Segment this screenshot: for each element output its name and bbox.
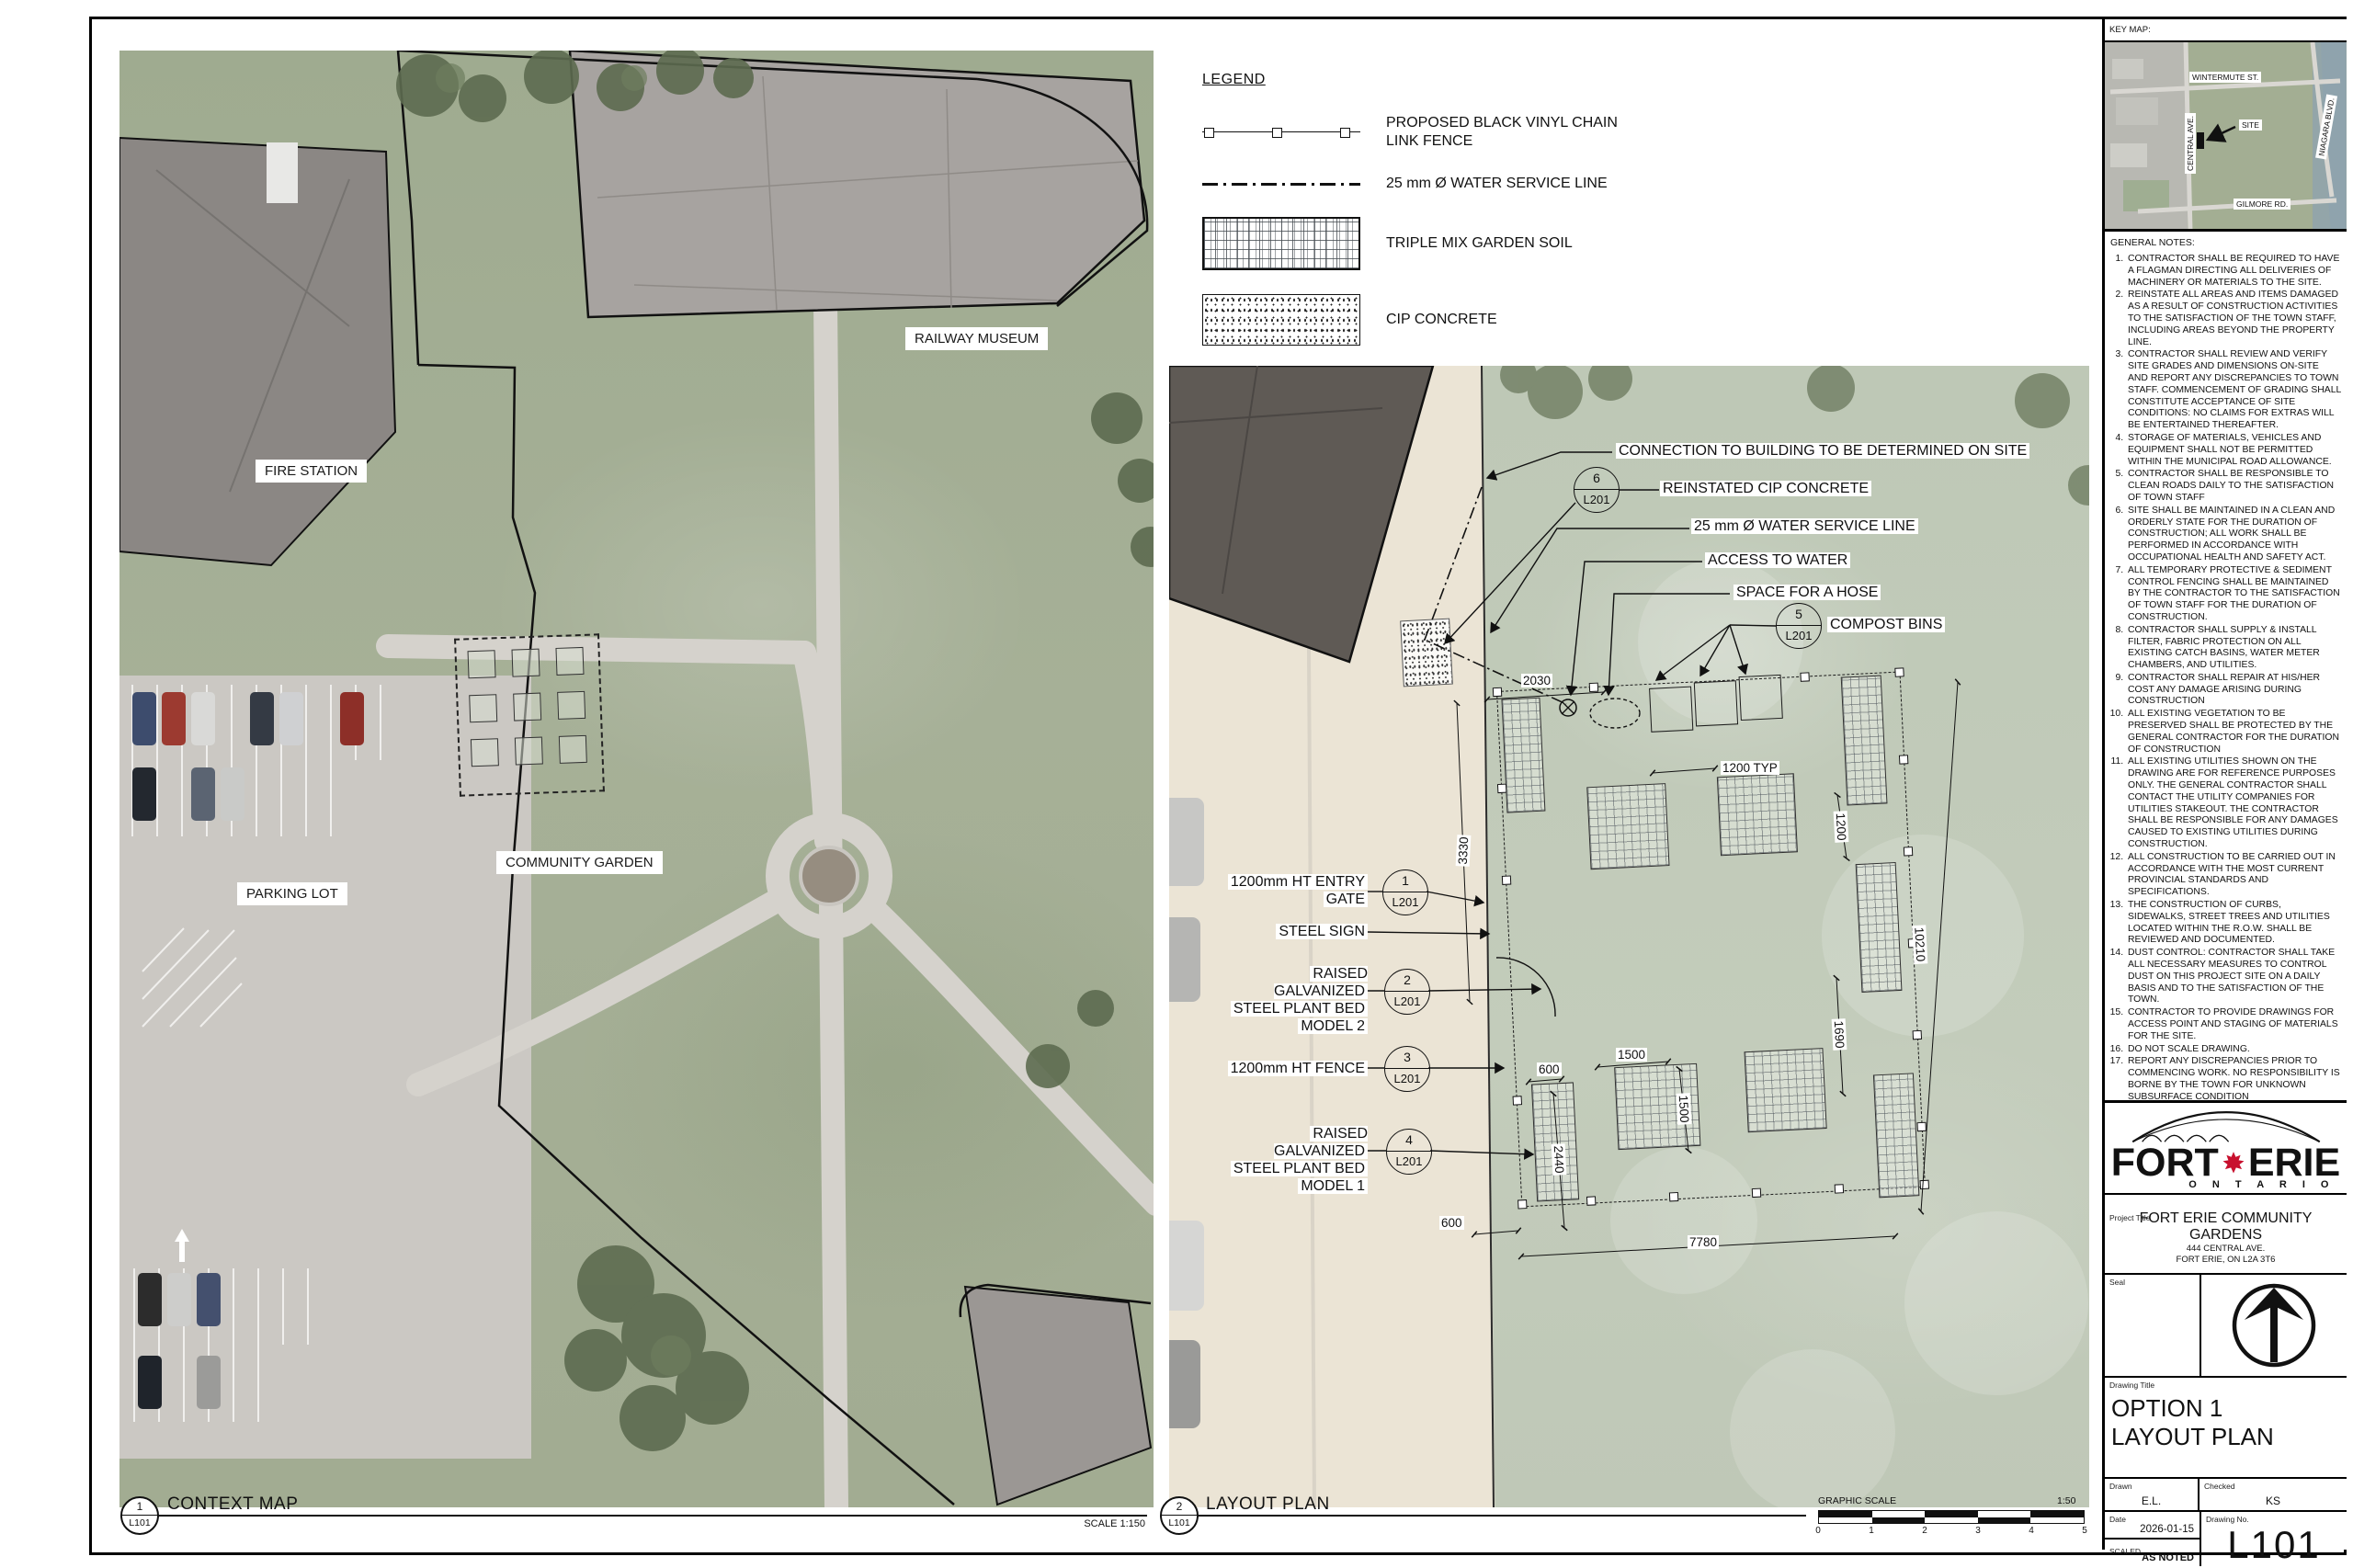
parked-car bbox=[1169, 1340, 1200, 1428]
note-item: CONTRACTOR SHALL BE REQUIRED TO HAVE A F… bbox=[2126, 254, 2341, 289]
callout-steel-sign: STEEL SIGN bbox=[1221, 923, 1368, 940]
key-map: WINTERMUTE ST. SITE CENTRAL AVE. NIAGARA… bbox=[2105, 42, 2347, 232]
note-item: CONTRACTOR TO PROVIDE DRAWINGS FOR ACCES… bbox=[2126, 1007, 2341, 1042]
drawing-title-section: Drawing Title OPTION 1 LAYOUT PLAN bbox=[2105, 1378, 2347, 1479]
water-service-line-symbol bbox=[1202, 183, 1360, 186]
parked-car bbox=[1169, 798, 1204, 886]
street-label-central: CENTRAL AVE. bbox=[2185, 113, 2196, 174]
north-arrow-cell bbox=[2201, 1275, 2347, 1376]
seal-row: Seal bbox=[2105, 1275, 2347, 1378]
dim-1690: 1690 bbox=[1832, 1018, 1847, 1051]
site-label: SITE bbox=[2239, 119, 2262, 131]
plant-bed bbox=[1531, 1082, 1579, 1201]
drawn-value: E.L. bbox=[2105, 1494, 2198, 1507]
graphic-scale-label: GRAPHIC SCALE bbox=[1818, 1495, 1896, 1506]
note-item: CONTRACTOR SHALL SUPPLY & INSTALL FILTER… bbox=[2126, 625, 2341, 672]
drawing-title-label: Drawing Title bbox=[2109, 1381, 2154, 1390]
detail-bubble-2: 2L201 bbox=[1384, 969, 1430, 1015]
compost-bin bbox=[1694, 680, 1738, 726]
scale-tick: 0 bbox=[1813, 1526, 1824, 1536]
building-roof bbox=[1169, 366, 1433, 662]
key-map-graphics bbox=[2105, 42, 2347, 232]
railway-museum-label: RAILWAY MUSEUM bbox=[905, 327, 1048, 350]
detail-bubble-4: 4L201 bbox=[1386, 1129, 1432, 1175]
drawing-number-value: L101 bbox=[2201, 1523, 2347, 1567]
context-map-aerial bbox=[119, 51, 1154, 1507]
scale-tick: 2 bbox=[1919, 1526, 1930, 1536]
view2-title: LAYOUT PLAN bbox=[1206, 1494, 1330, 1515]
plant-bed bbox=[1717, 773, 1798, 856]
reinstated-concrete-patch bbox=[1400, 619, 1453, 687]
dim-3330: 3330 bbox=[1456, 835, 1472, 867]
plant-bed bbox=[1873, 1073, 1919, 1198]
date-scale-number-row: Date 2026-01-15 SCALED AS NOTED Drawing … bbox=[2105, 1512, 2347, 1566]
sidewalk-edge-line bbox=[1482, 366, 1494, 1507]
north-arrow-icon bbox=[2230, 1281, 2318, 1369]
seal-label: Seal bbox=[2109, 1278, 2125, 1287]
callout-compost-bins: COMPOST BINS bbox=[1827, 617, 1945, 633]
dim-1200-typ: 1200 TYP bbox=[1721, 761, 1779, 775]
note-item: CONTRACTOR SHALL REVIEW AND VERIFY SITE … bbox=[2126, 349, 2341, 432]
chain-link-fence-symbol bbox=[1202, 126, 1360, 139]
dim-600-mid: 600 bbox=[1537, 1062, 1562, 1076]
title-block: KEY MAP: WINTERMUTE ST. SITE CENTRAL AVE… bbox=[2102, 19, 2347, 1550]
checked-cell: Checked KS bbox=[2200, 1479, 2347, 1510]
note-item: STORAGE OF MATERIALS, VEHICLES AND EQUIP… bbox=[2126, 433, 2341, 468]
dim-600-bottom: 600 bbox=[1439, 1216, 1464, 1230]
roundabout-island bbox=[801, 847, 858, 904]
view2-bubble: 2L101 bbox=[1160, 1496, 1199, 1535]
street-label-wintermute: WINTERMUTE ST. bbox=[2189, 72, 2261, 83]
garden-fence-enclosure bbox=[1496, 672, 1926, 1208]
garden-soil-hatch-symbol bbox=[1202, 217, 1360, 270]
maple-leaf-icon bbox=[2222, 1151, 2245, 1175]
logo-word-fort: FORT bbox=[2111, 1142, 2219, 1183]
callout-entry-gate: 1200mm HT ENTRYGATE bbox=[1221, 873, 1368, 908]
drawn-cell: Drawn E.L. bbox=[2105, 1479, 2200, 1510]
project-address2: FORT ERIE, ON L2A 3T6 bbox=[2105, 1255, 2347, 1266]
dim-10210: 10210 bbox=[1912, 925, 1927, 963]
legend-item-fence: PROPOSED BLACK VINYL CHAIN LINK FENCE bbox=[1202, 114, 1680, 151]
logo-bridge-arcs bbox=[2111, 1107, 2341, 1143]
logo-word-erie: ERIE bbox=[2248, 1142, 2340, 1183]
date-value: 2026-01-15 bbox=[2105, 1524, 2194, 1535]
legend: LEGEND PROPOSED BLACK VINYL CHAIN LINK F… bbox=[1202, 72, 1680, 369]
view2-title-line bbox=[1197, 1515, 1806, 1517]
parked-car bbox=[1169, 1221, 1204, 1311]
scale-cell: SCALED AS NOTED bbox=[2105, 1540, 2200, 1566]
detail-bubble-5: 5L201 bbox=[1776, 603, 1822, 649]
cip-concrete-stipple-symbol bbox=[1202, 294, 1360, 346]
callout-connection: CONNECTION TO BUILDING TO BE DETERMINED … bbox=[1616, 443, 2029, 460]
scale-tick: 4 bbox=[2026, 1526, 2037, 1536]
date-cell: Date 2026-01-15 bbox=[2105, 1512, 2200, 1540]
general-notes-title: GENERAL NOTES: bbox=[2110, 237, 2341, 248]
graphic-scale-ratio: 1:50 bbox=[2057, 1495, 2075, 1506]
project-title-section: Project Title FORT ERIE COMMUNITY GARDEN… bbox=[2105, 1210, 2347, 1275]
note-item: ALL CONSTRUCTION TO BE CARRIED OUT IN AC… bbox=[2126, 852, 2341, 899]
railway-museum-roof bbox=[570, 51, 1144, 317]
detail-bubble-1: 1L201 bbox=[1382, 869, 1428, 915]
dim-1200: 1200 bbox=[1834, 811, 1849, 843]
parking-lot-label: PARKING LOT bbox=[237, 882, 347, 905]
plant-bed bbox=[1856, 862, 1903, 993]
legend-item-soil: TRIPLE MIX GARDEN SOIL bbox=[1202, 217, 1680, 270]
note-item: THE CONSTRUCTION OF CURBS, SIDEWALKS, ST… bbox=[2126, 900, 2341, 947]
drawn-checked-row: Drawn E.L. Checked KS bbox=[2105, 1479, 2347, 1512]
view1-title: CONTEXT MAP bbox=[167, 1494, 298, 1515]
drawing-title-line2: LAYOUT PLAN bbox=[2105, 1423, 2347, 1451]
context-map-graphics bbox=[119, 51, 1154, 1507]
plant-bed bbox=[1586, 783, 1669, 869]
dim-1500-v: 1500 bbox=[1677, 1093, 1692, 1125]
note-item: DUST CONTROL: CONTRACTOR SHALL TAKE ALL … bbox=[2126, 948, 2341, 1006]
street-label-gilmore: GILMORE RD. bbox=[2234, 199, 2290, 210]
dim-2030: 2030 bbox=[1521, 674, 1552, 687]
callout-access-to-water: ACCESS TO WATER bbox=[1705, 552, 1850, 569]
note-item: REINSTATE ALL AREAS AND ITEMS DAMAGED AS… bbox=[2126, 290, 2341, 348]
detail-bubble-6: 6L201 bbox=[1574, 467, 1620, 513]
view1-bubble: 1L101 bbox=[120, 1496, 159, 1535]
view1-scale: SCALE 1:150 bbox=[1039, 1518, 1145, 1529]
note-item: ALL TEMPORARY PROTECTIVE & SEDIMENT CONT… bbox=[2126, 565, 2341, 624]
seal-cell: Seal bbox=[2105, 1275, 2201, 1376]
project-address1: 444 CENTRAL AVE. bbox=[2105, 1244, 2347, 1255]
drawing-number-cell: Drawing No. L101 bbox=[2201, 1512, 2347, 1566]
plant-bed bbox=[1744, 1048, 1826, 1132]
compost-bin bbox=[1649, 687, 1693, 733]
checked-value: KS bbox=[2200, 1494, 2347, 1507]
south-building-roof bbox=[965, 1287, 1151, 1505]
legend-item-water-line: 25 mm Ø WATER SERVICE LINE bbox=[1202, 175, 1680, 193]
view1-title-line bbox=[156, 1515, 1147, 1517]
community-garden-label: COMMUNITY GARDEN bbox=[496, 851, 663, 874]
callout-plant-bed-model1: RAISED GALVANIZEDSTEEL PLANT BEDMODEL 1 bbox=[1221, 1125, 1368, 1195]
scale-value: AS NOTED bbox=[2105, 1552, 2194, 1563]
parked-car bbox=[1169, 917, 1200, 1002]
legend-title: LEGEND bbox=[1202, 72, 1680, 88]
scale-tick: 1 bbox=[1866, 1526, 1877, 1536]
note-item: CONTRACTOR SHALL BE RESPONSIBLE TO CLEAN… bbox=[2126, 469, 2341, 504]
note-item: ALL EXISTING UTILITIES SHOWN ON THE DRAW… bbox=[2126, 756, 2341, 850]
callout-1200-fence: 1200mm HT FENCE bbox=[1221, 1060, 1368, 1077]
fire-station-label: FIRE STATION bbox=[256, 460, 367, 483]
callout-plant-bed-model2: RAISED GALVANIZEDSTEEL PLANT BEDMODEL 2 bbox=[1221, 965, 1368, 1035]
compost-bin bbox=[1739, 675, 1783, 721]
dim-7780: 7780 bbox=[1688, 1235, 1719, 1249]
legend-item-concrete: CIP CONCRETE bbox=[1202, 294, 1680, 346]
note-item: ALL EXISTING VEGETATION TO BE PRESERVED … bbox=[2126, 709, 2341, 756]
callout-water-service: 25 mm Ø WATER SERVICE LINE bbox=[1691, 518, 1918, 535]
general-notes: GENERAL NOTES: CONTRACTOR SHALL BE REQUI… bbox=[2105, 232, 2347, 1103]
fort-erie-logo: FORT ERIE O N T A R I O bbox=[2105, 1103, 2347, 1195]
graphic-scale-bar bbox=[1818, 1510, 2085, 1524]
general-notes-list: CONTRACTOR SHALL BE REQUIRED TO HAVE A F… bbox=[2110, 254, 2341, 1104]
callout-space-for-hose: SPACE FOR A HOSE bbox=[1733, 585, 1881, 601]
callout-reinstated-concrete: REINSTATED CIP CONCRETE bbox=[1660, 481, 1871, 497]
plant-bed bbox=[1501, 698, 1545, 813]
project-title-label: Project Title bbox=[2109, 1213, 2150, 1222]
fire-station-roof bbox=[119, 138, 395, 565]
detail-bubble-3: 3L201 bbox=[1384, 1046, 1430, 1092]
vehicle-white bbox=[267, 142, 298, 203]
note-item: DO NOT SCALE DRAWING. bbox=[2126, 1044, 2341, 1056]
key-map-header: KEY MAP: bbox=[2105, 19, 2347, 42]
community-garden-plot bbox=[454, 633, 605, 796]
note-item: REPORT ANY DISCREPANCIES PRIOR TO COMMEN… bbox=[2126, 1056, 2341, 1103]
scale-tick: 3 bbox=[1972, 1526, 1984, 1536]
drawing-title-line1: OPTION 1 bbox=[2105, 1394, 2347, 1423]
note-item: SITE SHALL BE MAINTAINED IN A CLEAN AND … bbox=[2126, 506, 2341, 564]
plant-bed bbox=[1841, 676, 1888, 806]
dim-2440: 2440 bbox=[1552, 1143, 1567, 1176]
drawing-sheet: FIRE STATION RAILWAY MUSEUM PARKING LOT … bbox=[0, 0, 2353, 1568]
dim-1500-h: 1500 bbox=[1616, 1048, 1647, 1062]
note-item: CONTRACTOR SHALL REPAIR AT HIS/HER COST … bbox=[2126, 673, 2341, 708]
scale-tick: 5 bbox=[2079, 1526, 2090, 1536]
